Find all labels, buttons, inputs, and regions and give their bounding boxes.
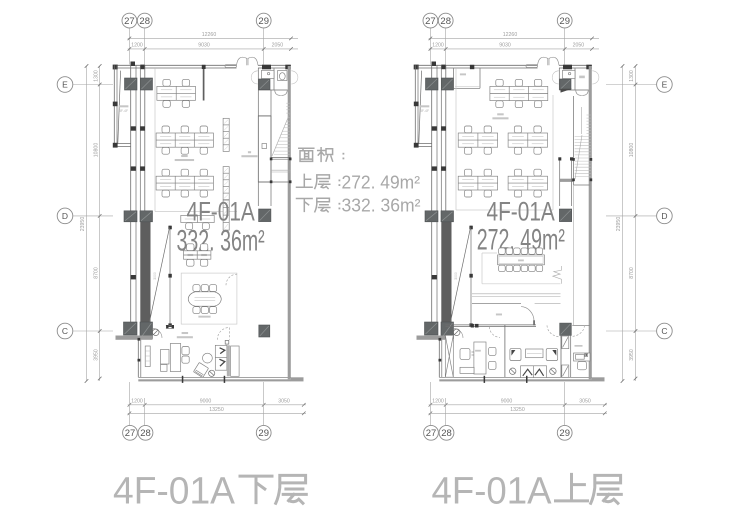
svg-text:29: 29 [559,16,570,27]
svg-text:4F-01A: 4F-01A [113,471,236,513]
svg-text:3000: 3000 [454,272,458,280]
svg-text:23950: 23950 [80,217,86,232]
svg-text:29: 29 [258,16,269,27]
svg-text:8700: 8700 [629,267,635,279]
svg-text:E: E [662,80,668,90]
svg-text:3050: 3050 [579,399,591,405]
svg-text:1200: 1200 [432,399,444,405]
svg-text:D: D [62,211,68,221]
svg-text:13250: 13250 [209,407,224,413]
svg-text:13250: 13250 [510,407,525,413]
svg-text:12260: 12260 [202,32,217,38]
svg-text:1200: 1200 [432,43,444,49]
svg-text:3F-4F: 3F-4F [420,109,429,113]
svg-text:4F-01A: 4F-01A [487,197,555,227]
svg-text:9030: 9030 [198,43,210,49]
svg-text:29: 29 [559,428,570,439]
svg-text:D: D [661,211,667,221]
svg-text:28: 28 [440,16,451,27]
svg-text:27: 27 [125,428,136,439]
svg-text:28: 28 [441,428,452,439]
svg-text:27: 27 [426,428,437,439]
svg-text:23950: 23950 [616,217,622,232]
svg-text:4F-01A: 4F-01A [187,197,255,227]
svg-text:12260: 12260 [503,32,518,38]
svg-text:E: E [62,80,68,90]
svg-text:3950: 3950 [93,349,99,361]
svg-text:2050: 2050 [573,43,585,49]
svg-text:1300: 1300 [629,70,635,82]
svg-text:332. 36m²: 332. 36m² [342,196,421,216]
svg-text:27: 27 [124,16,135,27]
svg-text:3F-4F: 3F-4F [119,109,128,113]
svg-text:27: 27 [425,16,436,27]
svg-text:C: C [62,326,68,336]
svg-text:1300: 1300 [93,70,99,82]
svg-text:28: 28 [140,428,151,439]
svg-text:3050: 3050 [278,399,290,405]
svg-text:10800: 10800 [629,143,635,158]
svg-text:1200: 1200 [131,399,143,405]
svg-text:8700: 8700 [93,267,99,279]
svg-text:9030: 9030 [499,43,511,49]
svg-text:3950: 3950 [629,349,635,361]
svg-text:10800: 10800 [93,143,99,158]
svg-text:3000: 3000 [153,272,157,280]
svg-text:9000: 9000 [200,399,212,405]
svg-text:2050: 2050 [272,43,284,49]
svg-text:29: 29 [258,428,269,439]
svg-text:272. 49m²: 272. 49m² [342,172,421,192]
svg-text:C: C [661,326,667,336]
svg-text:1200: 1200 [131,43,143,49]
svg-text:28: 28 [139,16,150,27]
svg-text:9000: 9000 [501,399,513,405]
svg-text:4F-01A: 4F-01A [432,471,553,513]
